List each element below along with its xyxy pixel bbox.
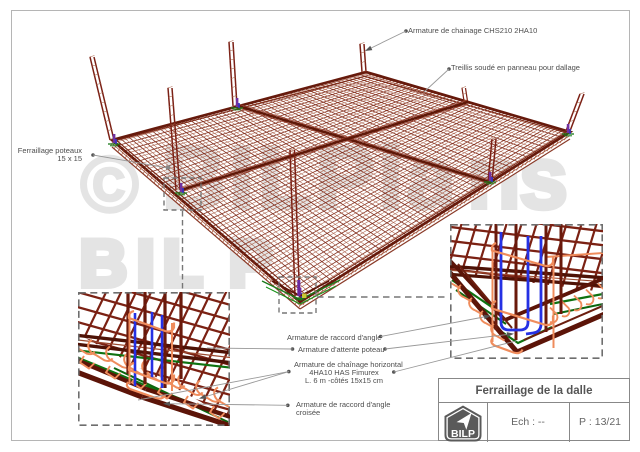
svg-text:BILP: BILP <box>451 428 475 440</box>
